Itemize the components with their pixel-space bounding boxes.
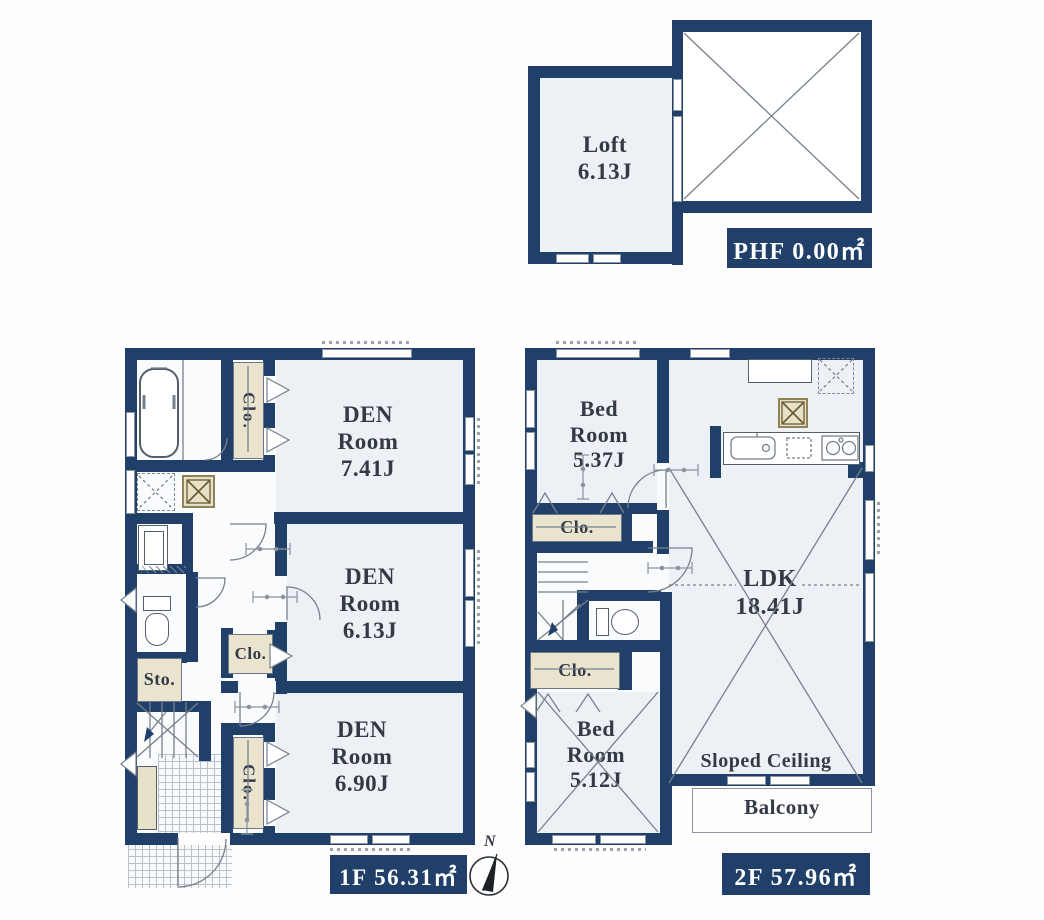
dimension-text [477, 550, 480, 646]
refrigerator-space-icon [818, 358, 854, 394]
wall [528, 66, 540, 264]
wall [525, 640, 672, 652]
gap [275, 576, 287, 622]
window [526, 390, 535, 428]
toilet-bowl-icon [611, 609, 639, 635]
wall [863, 348, 875, 786]
drain-pan-icon [778, 398, 808, 428]
div: 6.13J [310, 618, 430, 645]
loft-window [593, 254, 621, 263]
gap [263, 800, 275, 826]
wall [125, 513, 187, 524]
drain-pan-icon [182, 475, 215, 508]
loft-label: Loft 6.13J [540, 132, 670, 186]
toilet-tank-icon [596, 608, 609, 636]
loft-window [556, 254, 589, 263]
wall [710, 426, 721, 478]
threshold-hatch [141, 566, 186, 573]
dimension-text [554, 848, 646, 851]
div: Room [536, 742, 656, 768]
div: 5.12J [536, 767, 656, 793]
circle [470, 857, 508, 895]
gap [178, 833, 230, 845]
closet-1f-c: Clo. [233, 737, 264, 829]
gap [263, 376, 275, 403]
window [552, 835, 596, 844]
wall [199, 701, 211, 761]
label-den-613: DENRoom6.13J [310, 564, 430, 645]
window [526, 742, 535, 768]
wall [125, 460, 275, 472]
wall [618, 650, 632, 690]
closet-1f-a: Clo. [233, 362, 264, 459]
floorplan-canvas: Loft 6.13J PHF 0.00㎡ [0, 0, 1044, 920]
window [372, 835, 410, 844]
window [330, 835, 368, 844]
bathtub-icon [139, 368, 179, 458]
wall [660, 592, 672, 845]
area-badge-1f: 1F 56.31㎡ [330, 855, 467, 894]
gap [263, 428, 275, 455]
div: Bed [539, 396, 659, 422]
wall [274, 512, 475, 524]
label-sloped-ceiling: Sloped Ceiling [668, 750, 864, 773]
div: DEN [308, 402, 428, 429]
closet-label: Clo. [239, 392, 259, 430]
window [465, 600, 474, 647]
dimension-text [330, 848, 412, 851]
window [126, 412, 135, 457]
window [690, 349, 730, 358]
washer-space-icon [137, 473, 175, 511]
gap [238, 681, 276, 693]
closet-label: Clo. [235, 644, 267, 664]
div: Room [310, 591, 430, 618]
label-ldk: LDK18.41J [710, 565, 830, 621]
path [483, 854, 497, 891]
window [865, 445, 874, 472]
div: 5.37J [539, 447, 659, 473]
shoe-cabinet-icon [137, 766, 157, 830]
closet-2f-a: Clo. [532, 514, 622, 542]
window [465, 417, 474, 451]
div: Room [302, 744, 422, 771]
window [556, 349, 640, 358]
wall [221, 359, 233, 463]
wall [525, 503, 657, 514]
label-den-741: DENRoom7.41J [308, 402, 428, 483]
loft-name: Loft [540, 132, 670, 159]
dimension-text [556, 341, 640, 344]
phf-void-room [683, 32, 861, 201]
dimension-text [322, 341, 412, 344]
wall [657, 510, 669, 554]
window [465, 549, 474, 597]
kitchen-counter-icon [723, 432, 860, 465]
label-bed-512: BedRoom5.12J [536, 716, 656, 793]
div: Room [539, 422, 659, 448]
wall [861, 20, 872, 213]
gap [263, 742, 275, 768]
window [526, 432, 535, 470]
dimension-text [477, 418, 480, 484]
label-den-690: DENRoom6.90J [302, 717, 422, 798]
closet-label: Clo. [560, 517, 594, 538]
div: Bed [536, 716, 656, 742]
storage-label: Sto. [144, 669, 176, 690]
kitchen-cabinet-icon [748, 359, 812, 383]
storage-1f: Sto. [137, 658, 182, 702]
wall [125, 348, 475, 360]
vanity-basin [144, 531, 164, 565]
loft-area: 6.13J [540, 159, 670, 186]
div: LDK [710, 565, 830, 593]
div: 7.41J [308, 456, 428, 483]
compass-icon [470, 854, 508, 895]
window [770, 776, 810, 785]
wall [525, 541, 653, 553]
wall [577, 590, 661, 601]
wall [125, 701, 199, 712]
area-badge-2f: 2F 57.96㎡ [722, 853, 870, 895]
toilet-bowl-icon [145, 613, 169, 646]
div: 18.41J [710, 593, 830, 621]
closet-2f-b: Clo. [530, 652, 620, 689]
wall [528, 66, 678, 78]
compass-north-label: N [481, 833, 499, 852]
div: 6.90J [302, 771, 422, 798]
div: DEN [310, 564, 430, 591]
phf-area-badge: PHF 0.00㎡ [727, 228, 872, 268]
closet-label: Clo. [558, 660, 592, 681]
loft-window [673, 79, 682, 111]
window [600, 835, 646, 844]
wall [682, 201, 872, 213]
wall [672, 20, 872, 32]
closet-label: Clo. [239, 764, 259, 802]
window [322, 349, 412, 358]
div: Room [308, 429, 428, 456]
wall [660, 774, 875, 786]
window [865, 500, 874, 560]
label-bed-537: BedRoom5.37J [539, 396, 659, 473]
toilet-tank-icon [143, 596, 171, 611]
polygon [482, 854, 497, 892]
wall [525, 833, 672, 845]
window [727, 776, 766, 785]
window [126, 470, 135, 514]
window [865, 573, 874, 642]
dimension-text [877, 502, 880, 558]
label-balcony: Balcony [692, 795, 872, 820]
loft-window [673, 116, 682, 202]
div: DEN [302, 717, 422, 744]
window [526, 772, 535, 802]
wall [186, 572, 198, 662]
wall [221, 730, 233, 834]
closet-1f-b: Clo. [228, 634, 273, 674]
window [465, 454, 474, 485]
